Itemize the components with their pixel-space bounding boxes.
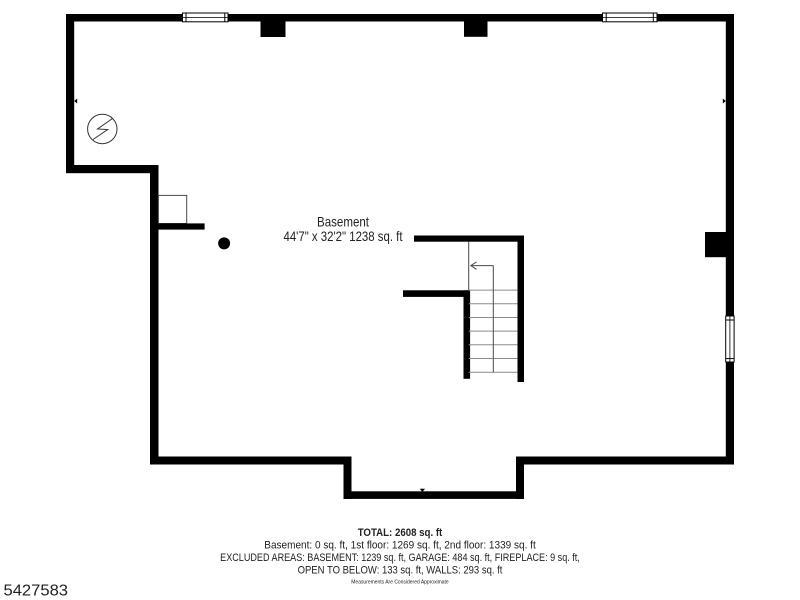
svg-text:5427583: 5427583 <box>4 583 69 600</box>
svg-text:TOTAL: 2608 sq. ft: TOTAL: 2608 sq. ft <box>358 527 443 539</box>
svg-text:Measurements Are Considered Ap: Measurements Are Considered Approximate <box>351 580 448 586</box>
svg-text:44'7" x 32'2" 1238 sq. ft: 44'7" x 32'2" 1238 sq. ft <box>284 228 403 244</box>
svg-text:EXCLUDED AREAS: BASEMENT: 1239: EXCLUDED AREAS: BASEMENT: 1239 sq. ft, G… <box>220 552 580 564</box>
svg-text:Basement: 0 sq. ft, 1st floor:: Basement: 0 sq. ft, 1st floor: 1269 sq. … <box>264 539 536 551</box>
svg-text:OPEN TO BELOW: 133 sq. ft, WAL: OPEN TO BELOW: 133 sq. ft, WALLS: 293 sq… <box>298 564 503 576</box>
